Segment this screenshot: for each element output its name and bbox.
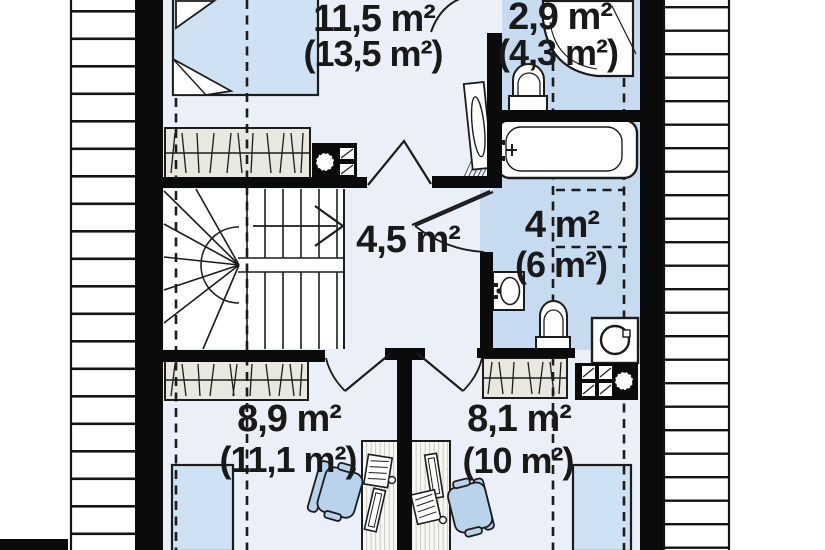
label-room-right-full: (10 m²) <box>462 440 573 481</box>
label-bathroom-main-area: 4 m² <box>525 204 599 246</box>
wardrobe-room-left <box>165 360 308 400</box>
roof-slope-hatch-left <box>70 0 135 550</box>
label-hall-area: 4,5 m² <box>356 219 460 261</box>
single-bed-right <box>573 465 631 550</box>
label-bathroom-small-full: (4,3 m²) <box>498 32 618 73</box>
chimney-vent-block-bottom <box>575 363 638 400</box>
bathtub <box>497 120 637 178</box>
wardrobe-bedroom <box>165 128 310 178</box>
roof-slope-hatch-right <box>663 0 730 550</box>
floor-plan-svg: 11,5 m² (13,5 m²) 2,9 m² (4,3 m²) 4,5 m²… <box>0 0 825 550</box>
toilet-main-bathroom <box>536 301 570 349</box>
stairwell-floor <box>164 189 344 349</box>
floor-plan-canvas: 11,5 m² (13,5 m²) 2,9 m² (4,3 m²) 4,5 m²… <box>0 0 825 550</box>
partition-wall-center <box>397 352 412 550</box>
exterior-wall-left <box>135 0 163 550</box>
chimney-vent-block-top <box>312 143 357 183</box>
exterior-wall-right <box>640 0 663 550</box>
double-bed <box>173 0 318 95</box>
wardrobe-room-right <box>483 358 567 398</box>
mouse-icon <box>440 517 447 524</box>
label-bathroom-main-full: (6 m²) <box>515 244 607 285</box>
label-bedroom-area-full: (13,5 m²) <box>303 33 442 74</box>
mouse-icon <box>389 477 396 484</box>
label-room-right-area: 8,1 m² <box>467 398 571 440</box>
label-room-left-full: (11,1 m²) <box>219 439 356 480</box>
washing-machine <box>592 318 638 363</box>
label-room-left-area: 8,9 m² <box>237 398 341 440</box>
